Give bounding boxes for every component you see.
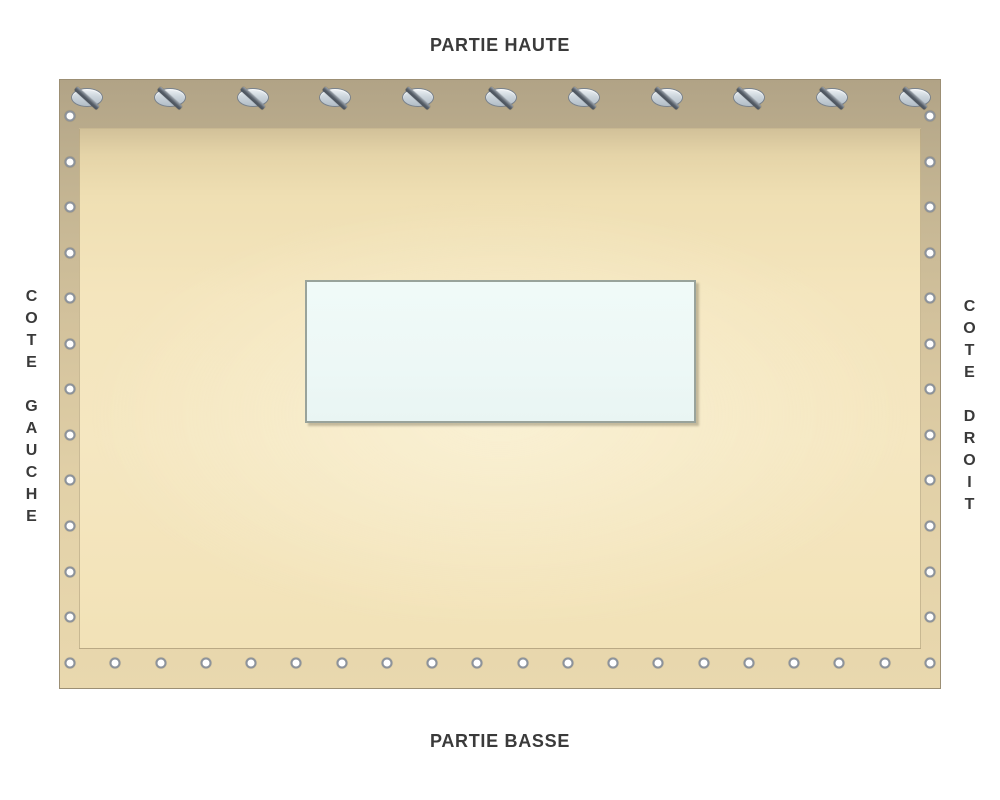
screw-icon: [71, 88, 103, 107]
eyelet-icon: [608, 658, 619, 669]
eyelet-icon: [925, 475, 936, 486]
eyelet-icon: [924, 658, 935, 669]
eyelet-icon: [65, 156, 76, 167]
eyelet-icon: [65, 475, 76, 486]
eyelet-icon: [65, 520, 76, 531]
eyelet-icon: [562, 658, 573, 669]
eyelet-icon: [65, 566, 76, 577]
eyelet-icon: [925, 247, 936, 258]
screw-icon: [733, 88, 765, 107]
eyelet-icon: [925, 202, 936, 213]
eyelet-icon: [291, 658, 302, 669]
eyelet-icon: [925, 612, 936, 623]
screw-icon: [816, 88, 848, 107]
screw-icon: [319, 88, 351, 107]
eyelet-icon: [381, 658, 392, 669]
label-cote-gauche: COTE GAUCHE: [22, 288, 40, 530]
eyelet-icon: [427, 658, 438, 669]
eyelet-icon: [65, 384, 76, 395]
transparent-window: [305, 280, 696, 423]
screw-icon: [402, 88, 434, 107]
eyelet-icon: [653, 658, 664, 669]
eyelet-icon: [65, 658, 76, 669]
eyelet-icon: [834, 658, 845, 669]
eyelet-icon: [925, 384, 936, 395]
diagram-page: { "labels": { "top": "PARTIE HAUTE", "bo…: [0, 0, 1000, 800]
tarp-panel: [59, 79, 941, 689]
eyelet-icon: [65, 429, 76, 440]
screw-icon: [899, 88, 931, 107]
eyelet-icon: [925, 293, 936, 304]
label-partie-haute: PARTIE HAUTE: [0, 35, 1000, 56]
eyelet-icon: [65, 247, 76, 258]
eyelet-icon: [336, 658, 347, 669]
eyelet-icon: [925, 429, 936, 440]
eyelet-icon: [65, 612, 76, 623]
eyelet-icon: [743, 658, 754, 669]
screw-icon: [651, 88, 683, 107]
eyelet-icon: [472, 658, 483, 669]
screw-icon: [237, 88, 269, 107]
eyelet-icon: [65, 293, 76, 304]
eyelet-icon: [110, 658, 121, 669]
eyelet-icon: [698, 658, 709, 669]
eyelet-icon: [200, 658, 211, 669]
eyelet-icon: [155, 658, 166, 669]
eyelet-icon: [517, 658, 528, 669]
screw-icon: [568, 88, 600, 107]
eyelet-icon: [65, 338, 76, 349]
eyelet-icon: [925, 156, 936, 167]
eyelet-icon: [879, 658, 890, 669]
eyelet-icon: [789, 658, 800, 669]
eyelet-icon: [65, 202, 76, 213]
label-cote-droit: COTE DROIT: [960, 298, 978, 518]
eyelet-icon: [925, 566, 936, 577]
eyelet-icon: [925, 338, 936, 349]
eyelet-icon: [65, 111, 76, 122]
label-partie-basse: PARTIE BASSE: [0, 731, 1000, 752]
eyelet-icon: [246, 658, 257, 669]
screw-icon: [154, 88, 186, 107]
eyelet-icon: [925, 520, 936, 531]
eyelet-icon: [925, 111, 936, 122]
screw-icon: [485, 88, 517, 107]
